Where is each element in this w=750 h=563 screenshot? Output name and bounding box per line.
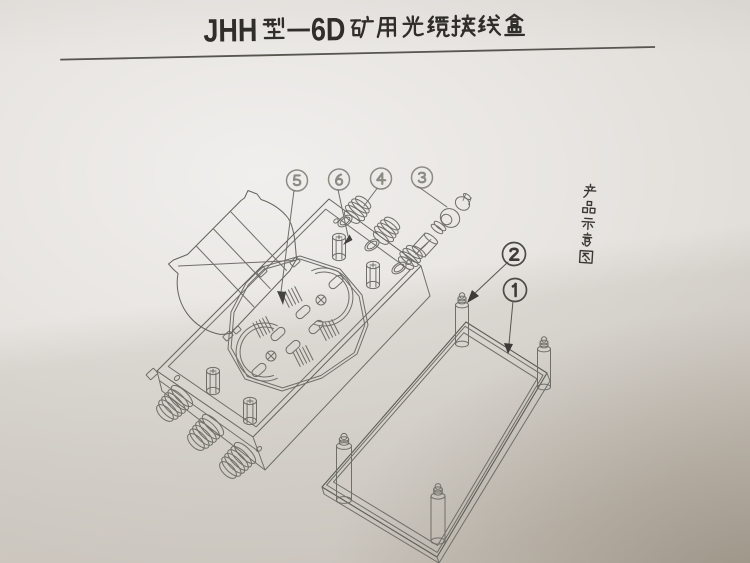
svg-text:6D: 6D [311,12,346,48]
svg-text:JHH: JHH [203,13,257,49]
